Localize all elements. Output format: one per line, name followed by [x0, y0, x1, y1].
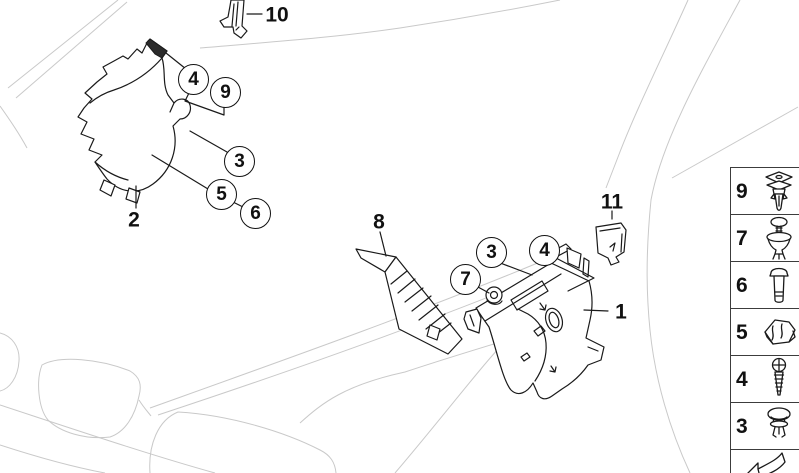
hex-bolt-icon: [759, 263, 799, 307]
part-11-drawing: [596, 223, 626, 265]
legend-number: 7: [731, 228, 759, 249]
callout-number: 3: [234, 152, 245, 171]
callout-number: 5: [216, 185, 227, 204]
part-label-2[interactable]: 2: [128, 210, 140, 231]
legend-item-4[interactable]: 4: [731, 356, 799, 403]
callout-number: 3: [486, 243, 497, 262]
part-label-1[interactable]: 1: [615, 302, 627, 323]
callout-4-right[interactable]: 4: [529, 235, 560, 266]
grommet-screw-icon: [759, 216, 799, 260]
legend-item-6[interactable]: 6: [731, 262, 799, 309]
callout-4-left[interactable]: 4: [178, 64, 209, 95]
callout-3-left[interactable]: 3: [224, 146, 255, 177]
parts-diagram-page: 4 9 3 5 6 3 4 7 2 10 8 11 1 9: [0, 0, 799, 473]
phillips-screw-icon: [759, 357, 799, 401]
part-label-8[interactable]: 8: [373, 212, 385, 233]
callout-3-right[interactable]: 3: [476, 237, 507, 268]
push-rivet-icon: [759, 404, 799, 448]
callout-number: 4: [539, 241, 550, 260]
legend-item-7[interactable]: 7: [731, 215, 799, 262]
part-2-drawing: [78, 39, 190, 203]
legend-item-3[interactable]: 3: [731, 403, 799, 450]
callout-6-left[interactable]: 6: [240, 198, 271, 229]
callout-9-left[interactable]: 9: [210, 77, 241, 108]
callout-number: 6: [250, 204, 261, 223]
part-label-10[interactable]: 10: [265, 5, 288, 26]
part-1-drawing: [464, 244, 604, 399]
fastener-legend: 9 7: [730, 167, 799, 473]
legend-item-5[interactable]: 5: [731, 309, 799, 356]
callout-7-right[interactable]: 7: [450, 264, 481, 295]
legend-number: 4: [731, 369, 759, 390]
square-head-clip-icon: [759, 169, 799, 213]
diagram-canvas: [0, 0, 799, 473]
legend-number: 9: [731, 181, 759, 202]
cage-clamp-icon: [759, 310, 799, 354]
legend-number: 6: [731, 275, 759, 296]
callout-5-left[interactable]: 5: [206, 179, 237, 210]
legend-number: 5: [731, 322, 759, 343]
leader-lines: [136, 14, 612, 311]
page-turn-arrow-icon: [731, 450, 799, 473]
part-label-11[interactable]: 11: [601, 192, 623, 213]
part-8-drawing: [356, 249, 462, 354]
callout-number: 9: [220, 83, 231, 102]
part-10-drawing: [220, 0, 247, 38]
callout-number: 4: [188, 70, 199, 89]
legend-number: 3: [731, 416, 759, 437]
callout-number: 7: [460, 270, 471, 289]
legend-item-9[interactable]: 9: [731, 168, 799, 215]
legend-footer[interactable]: [731, 450, 799, 473]
